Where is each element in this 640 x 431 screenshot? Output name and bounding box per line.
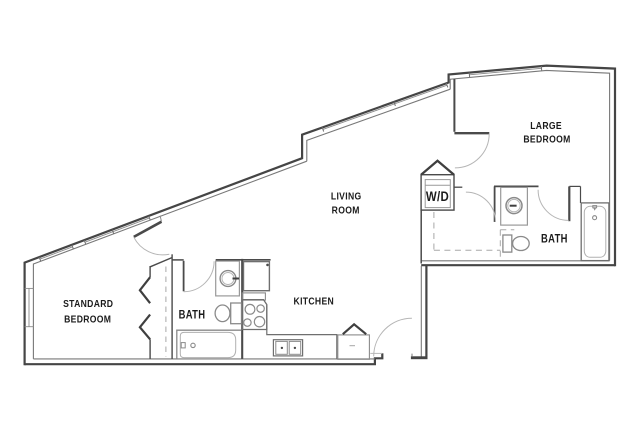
svg-text:BATH: BATH: [541, 233, 568, 246]
svg-text:ROOM: ROOM: [332, 205, 360, 217]
svg-text:W/D: W/D: [426, 189, 449, 204]
svg-text:KITCHEN: KITCHEN: [294, 296, 335, 308]
svg-text:LIVING: LIVING: [331, 191, 362, 203]
svg-text:BEDROOM: BEDROOM: [523, 134, 570, 146]
svg-text:BEDROOM: BEDROOM: [64, 314, 111, 326]
svg-text:STANDARD: STANDARD: [63, 298, 113, 310]
svg-text:BATH: BATH: [179, 308, 206, 321]
svg-text:LARGE: LARGE: [530, 120, 562, 132]
